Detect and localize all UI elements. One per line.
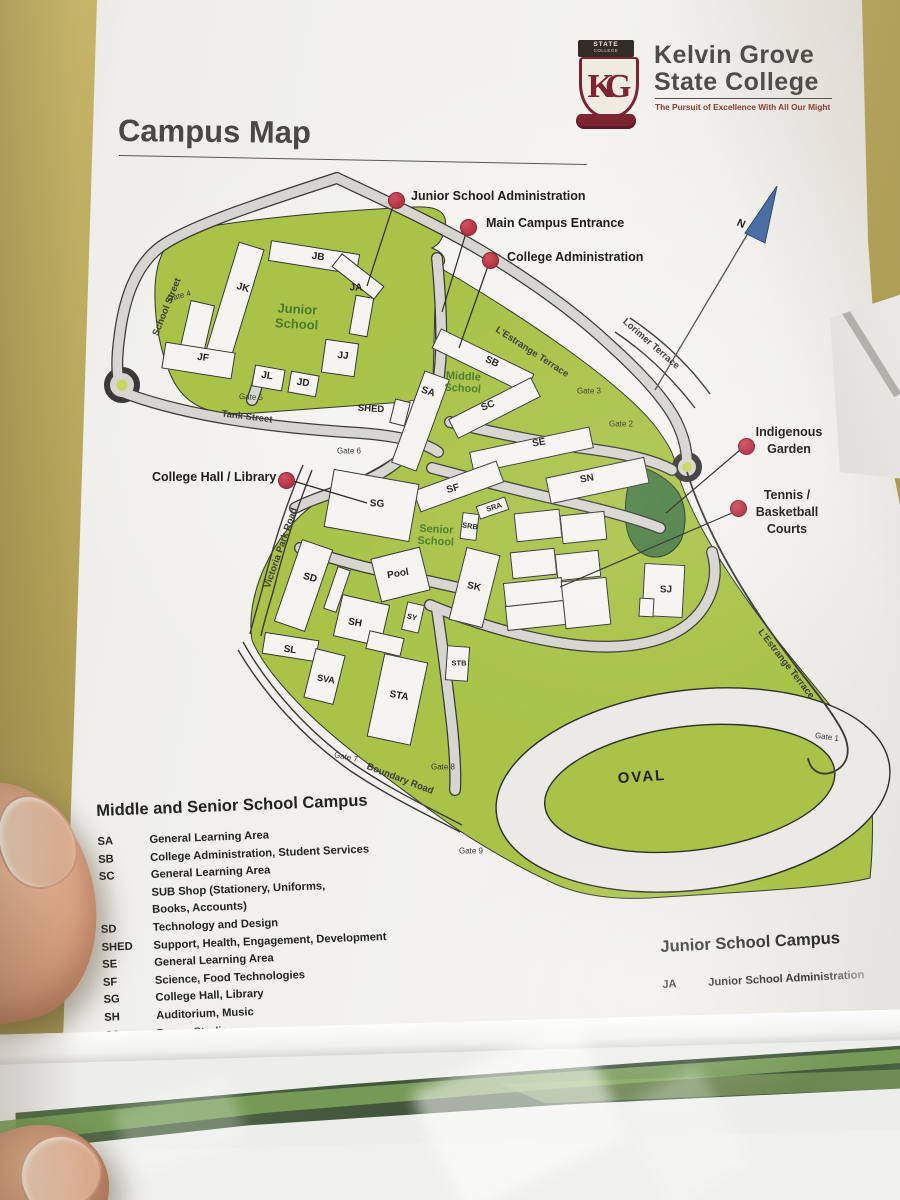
callout-label-college-hall-library: College Hall / Library: [152, 470, 276, 484]
callout-dot-college-administration: [482, 252, 499, 269]
callout-label-tennis-basketball-courts: Tennis / Basketball Courts: [748, 487, 826, 538]
callout-dot-junior-school-administration: [388, 192, 405, 209]
plastic-sleeve: [0, 1009, 900, 1200]
callout-label-college-administration: College Administration: [507, 250, 643, 264]
callout-dot-tennis-basketball-courts: [730, 500, 747, 517]
callout-dot-college-hall-library: [278, 472, 295, 489]
callout-label-junior-school-administration: Junior School Administration: [411, 189, 586, 203]
callout-label-main-campus-entrance: Main Campus Entrance: [486, 216, 624, 230]
legend-middle-senior-rows: SAGeneral Learning Area SBCollege Admini…: [97, 817, 535, 1044]
callout-label-indigenous-garden: Indigenous Garden: [750, 424, 828, 458]
legend-junior: Junior School Campus JAJunior School Adm…: [660, 926, 900, 994]
sleeve-lower-area: [0, 1129, 900, 1200]
overlapping-paper-edge: [836, 300, 900, 398]
legend-middle-senior: Middle and Senior School Campus SAGenera…: [96, 785, 535, 1044]
photo-of-campus-map: STATE COLLEGE KG Kelvin Grove State Coll…: [0, 0, 900, 1200]
callout-dot-main-campus-entrance: [460, 219, 477, 236]
compass-arrowhead: [745, 186, 777, 243]
north-compass: [655, 186, 777, 390]
